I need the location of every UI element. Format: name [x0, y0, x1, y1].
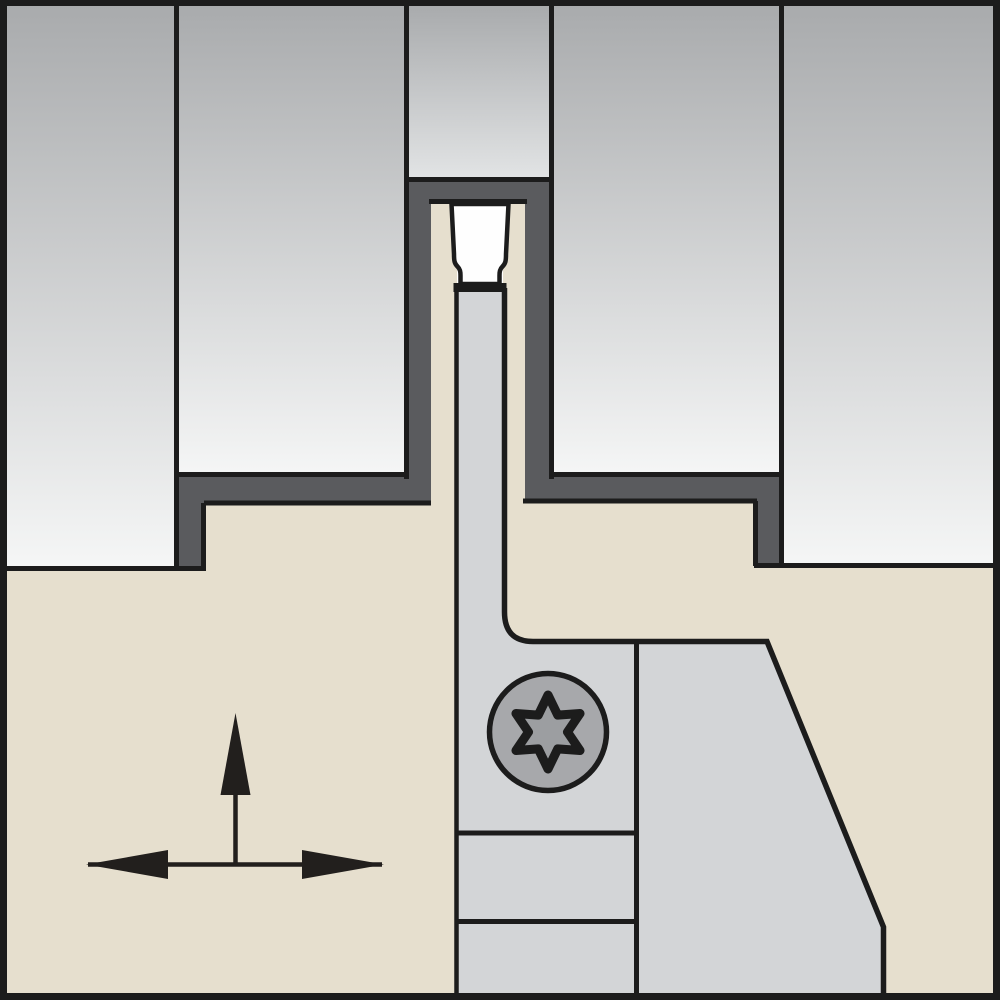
slot-step-right: [755, 472, 781, 566]
border-top: [0, 0, 1000, 6]
border-bottom: [0, 993, 1000, 1000]
slot-step-left: [176, 472, 204, 568]
vertical-arrow-stem: [233, 793, 238, 865]
workpiece-section-mid-left: [176, 6, 406, 476]
border-left: [0, 0, 7, 1000]
cutting-insert: [452, 204, 509, 284]
workpiece-section-far-left: [7, 6, 176, 566]
workpiece-section-above-groove: [404, 6, 554, 179]
workpiece-section-mid-right: [551, 6, 781, 476]
groove-wall-right: [522, 177, 551, 502]
workpiece-section-far-right: [781, 6, 993, 566]
clamp-screw: [490, 674, 607, 791]
diagram-canvas: [0, 0, 1000, 1000]
grooving-tool-diagram: [0, 0, 1000, 1000]
border-right: [993, 0, 1000, 1000]
